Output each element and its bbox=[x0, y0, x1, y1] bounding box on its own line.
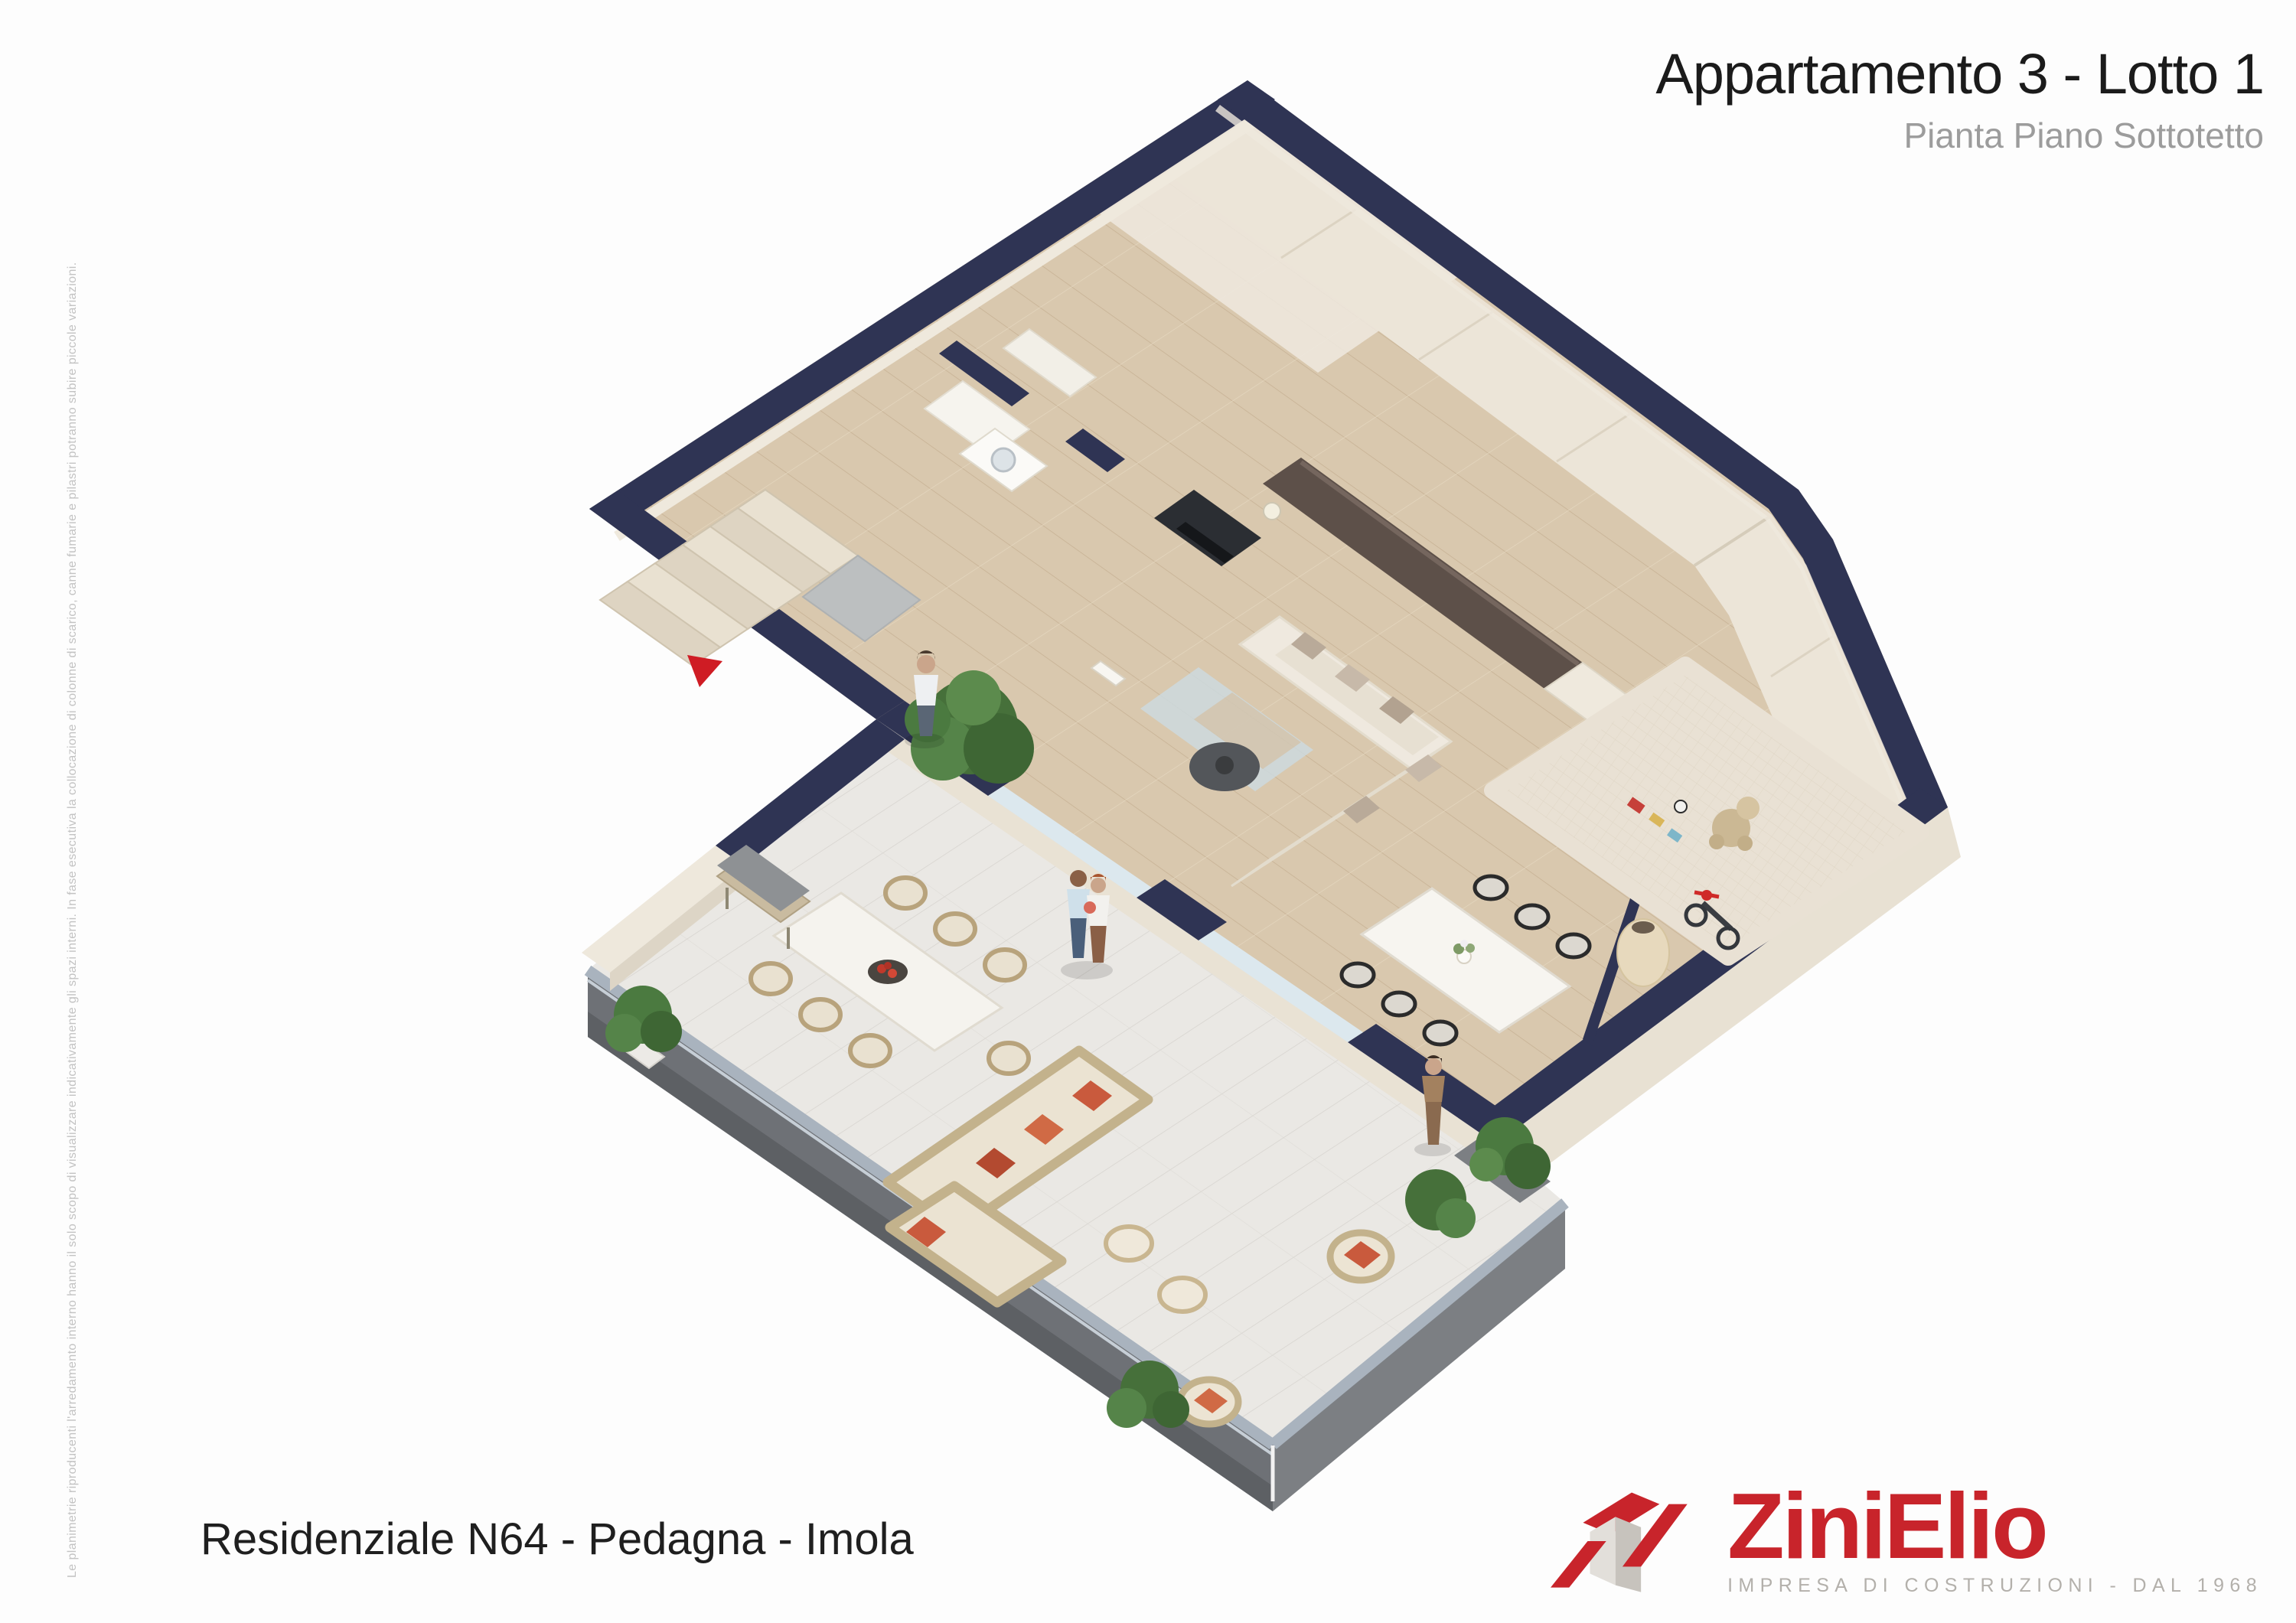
page-title: Appartamento 3 - Lotto 1 bbox=[1655, 44, 2264, 104]
page-subtitle: Pianta Piano Sottotetto bbox=[1655, 115, 2264, 156]
outdoor-armchair bbox=[1180, 1380, 1238, 1424]
project-title: Residenziale N64 - Pedagna - Imola bbox=[201, 1514, 914, 1565]
company-logo: ZiniElio IMPRESA DI COSTRUZIONI - DAL 19… bbox=[1548, 1476, 2262, 1597]
header: Appartamento 3 - Lotto 1 Pianta Piano So… bbox=[1655, 44, 2264, 156]
pouf bbox=[1106, 1227, 1152, 1260]
logo-tagline: IMPRESA DI COSTRUZIONI - DAL 1968 bbox=[1727, 1575, 2262, 1597]
disclaimer-text: Le planimetrie riproducenti l'arredament… bbox=[66, 262, 80, 1578]
page: Appartamento 3 - Lotto 1 Pianta Piano So… bbox=[0, 0, 2296, 1623]
builder-logo-icon bbox=[1548, 1476, 1711, 1597]
entrance-marker-icon bbox=[687, 655, 722, 687]
logo-name: ZiniElio bbox=[1727, 1488, 2047, 1564]
outdoor-armchair bbox=[1330, 1233, 1391, 1280]
floor-plan-rendering bbox=[0, 0, 2296, 1623]
lamp bbox=[1264, 503, 1280, 520]
pouf bbox=[1159, 1278, 1205, 1312]
logo-text: ZiniElio IMPRESA DI COSTRUZIONI - DAL 19… bbox=[1727, 1488, 2262, 1597]
